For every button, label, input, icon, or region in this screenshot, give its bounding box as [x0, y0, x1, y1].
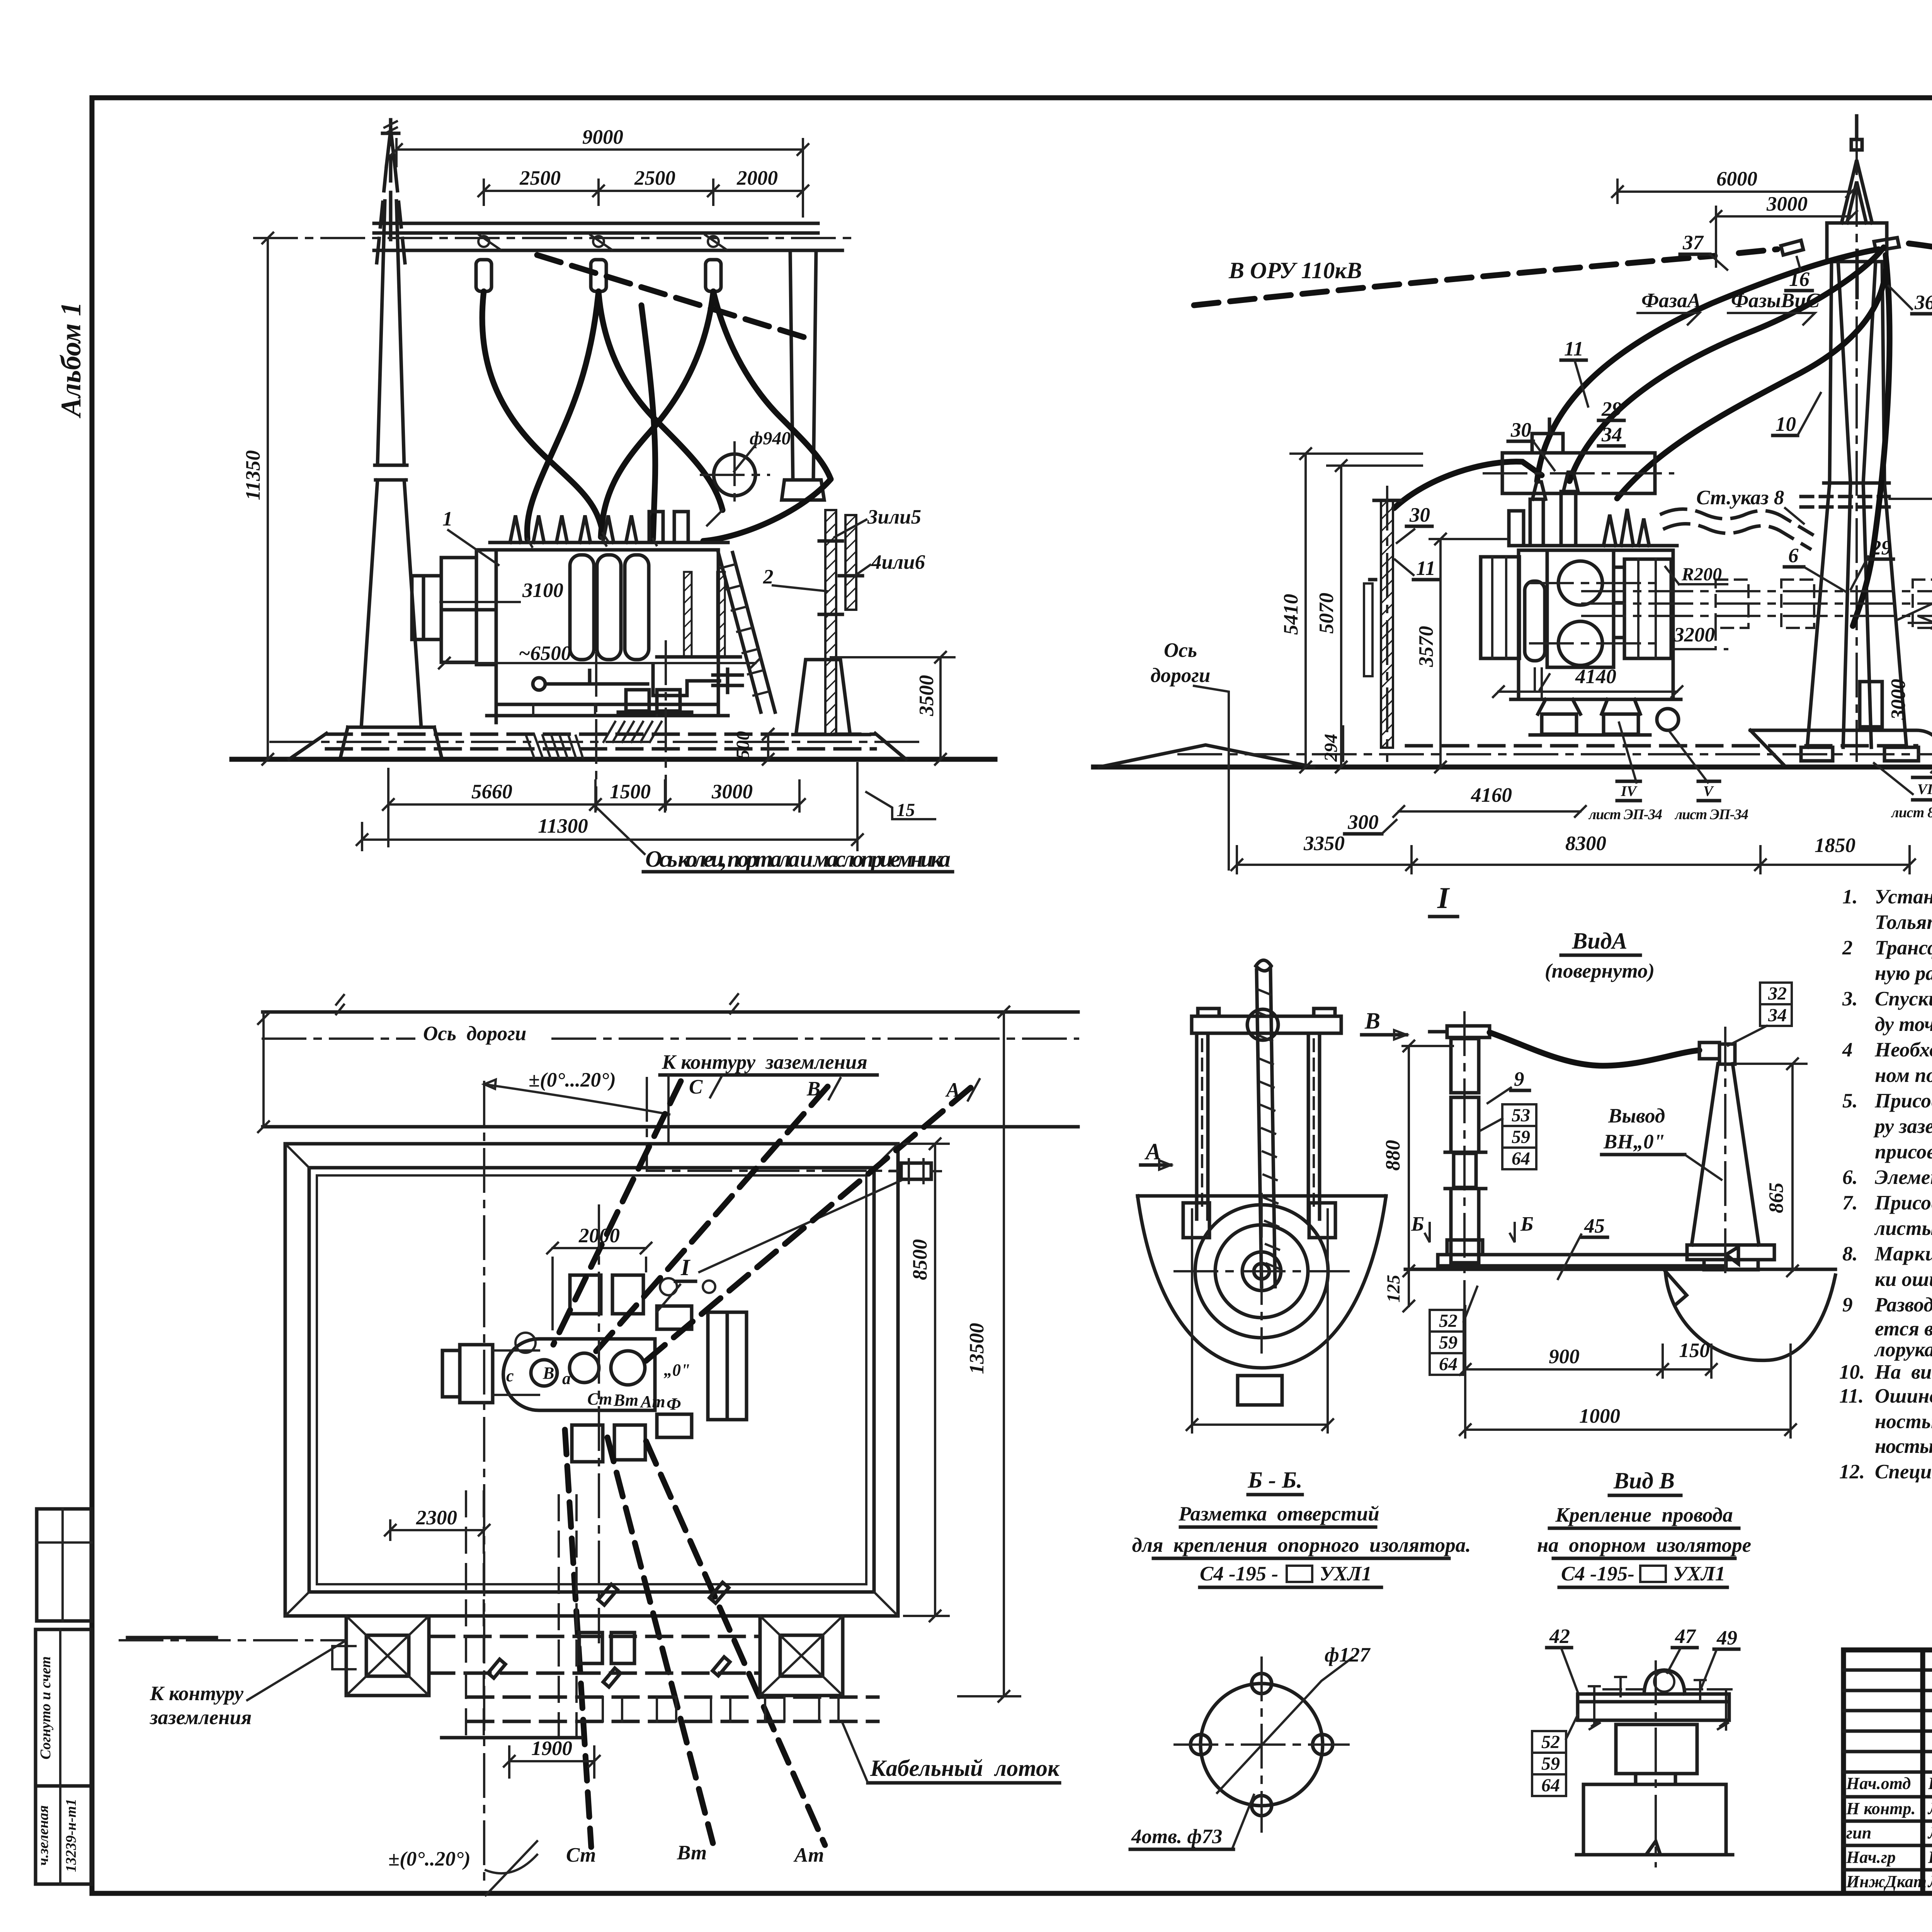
svg-text:Ось колеи, портала и маслоприе: Ось колеи, портала и маслоприемника [645, 846, 951, 872]
svg-text:3000: 3000 [1887, 679, 1910, 720]
svg-text:3500: 3500 [915, 675, 938, 716]
svg-text:С4 -195 -: С4 -195 - [1200, 1563, 1278, 1585]
svg-text:±(0°..20°): ±(0°..20°) [388, 1848, 471, 1870]
svg-text:Вид В: Вид В [1613, 1468, 1675, 1493]
svg-text:1000: 1000 [1579, 1405, 1620, 1427]
svg-text:Ат: Ат [639, 1392, 665, 1411]
svg-text:УХЛ1: УХЛ1 [1673, 1563, 1725, 1585]
svg-text:Присоединение ошиновки НН к: Присоединение ошиновки НН к трансформато… [1874, 1192, 1932, 1214]
svg-text:2500: 2500 [634, 167, 675, 189]
svg-text:Ф: Ф [667, 1395, 681, 1413]
svg-text:лист ЭП-34: лист ЭП-34 [1588, 806, 1662, 823]
svg-text:±(0°...20°): ±(0°...20°) [529, 1069, 616, 1091]
svg-text:64: 64 [1439, 1354, 1458, 1374]
svg-text:3350: 3350 [1303, 832, 1345, 855]
svg-text:8500: 8500 [909, 1239, 931, 1280]
svg-text:30: 30 [1510, 419, 1531, 441]
svg-text:ется в гибких металлорукавах: ется в гибких металлорукавах марки РЗ-Ц-… [1875, 1318, 1932, 1340]
svg-text:30: 30 [1409, 504, 1430, 526]
svg-text:Ошиновка СН выбрана для осн: Ошиновка СН выбрана для основного исполн… [1875, 1385, 1932, 1407]
svg-text:125: 125 [1383, 1275, 1404, 1303]
svg-text:Вт: Вт [677, 1842, 707, 1864]
svg-text:Спецификацию оборудования и: Спецификацию оборудования и материалов с… [1875, 1461, 1932, 1483]
svg-text:В: В [1364, 1008, 1380, 1034]
svg-text:3200: 3200 [1673, 624, 1715, 646]
svg-text:2000: 2000 [736, 167, 778, 189]
svg-text:ч.зеленая: ч.зеленая [35, 1805, 51, 1866]
svg-text:дороги: дороги [1151, 664, 1211, 687]
svg-text:2: 2 [1842, 937, 1853, 959]
svg-text:11300: 11300 [538, 815, 588, 837]
svg-text:1.: 1. [1842, 886, 1858, 908]
svg-text:8300: 8300 [1565, 832, 1606, 855]
svg-text:4отв. ф73: 4отв. ф73 [1131, 1825, 1222, 1848]
svg-text:Ломоносова: Ломоносова [1927, 1799, 1932, 1818]
svg-text:Ат: Ат [793, 1844, 824, 1866]
svg-text:900: 900 [1549, 1345, 1580, 1368]
svg-text:Лурье: Лурье [1927, 1823, 1932, 1842]
svg-text:ИнжДкат: ИнжДкат [1846, 1872, 1927, 1891]
svg-text:45: 45 [1584, 1215, 1605, 1237]
svg-text:Кабельный лоток: Кабельный лоток [870, 1755, 1060, 1781]
svg-text:29: 29 [1601, 398, 1622, 420]
svg-text:ном портале уточняется по че: ном портале уточняется по чертежам зазем… [1875, 1064, 1932, 1087]
svg-text:64: 64 [1512, 1148, 1530, 1169]
svg-text:(повернуто): (повернуто) [1545, 960, 1655, 982]
svg-text:32: 32 [1768, 983, 1787, 1004]
svg-text:59: 59 [1512, 1127, 1530, 1147]
svg-text:53: 53 [1512, 1105, 1530, 1126]
svg-text:для крепления опорного изол: для крепления опорного изолятора. [1132, 1534, 1471, 1556]
svg-text:Альбом 1: Альбом 1 [55, 302, 87, 418]
svg-text:Необходимость и сторона уст: Необходимость и сторона установки молние… [1874, 1039, 1932, 1061]
svg-text:Н контр.: Н контр. [1846, 1799, 1916, 1818]
svg-text:13500: 13500 [966, 1323, 988, 1374]
svg-text:V: V [1703, 783, 1714, 799]
svg-text:листы 9П-44,69 (гибкий токоп: листы 9П-44,69 (гибкий токопровод), 91 (… [1874, 1217, 1932, 1240]
svg-text:ду точкой соединения проводов: ду точкой соединения проводов и контактн… [1875, 1013, 1932, 1036]
svg-text:64: 64 [1541, 1775, 1560, 1796]
svg-text:Тольяттинского электротехниче: Тольяттинского электротехнического завод… [1875, 911, 1932, 934]
svg-text:Б - Б.: Б - Б. [1247, 1467, 1302, 1493]
svg-text:„0": „0" [664, 1361, 690, 1379]
svg-text:К контуру заземления: К контуру заземления [662, 1051, 867, 1073]
svg-text:лорукавов с кабелем к транс: лорукавов с кабелем к трансформатору осу… [1874, 1338, 1932, 1361]
svg-text:13239-н-т1: 13239-н-т1 [63, 1799, 79, 1872]
svg-text:~6500: ~6500 [519, 642, 571, 665]
svg-text:5.: 5. [1842, 1090, 1858, 1112]
svg-text:Ст: Ст [566, 1844, 596, 1866]
svg-text:Крепление провода: Крепление провода [1555, 1504, 1733, 1526]
svg-text:Вт: Вт [613, 1391, 638, 1410]
svg-text:3570: 3570 [1415, 626, 1437, 667]
svg-text:ки ошиновки„0" СН при подклю: ки ошиновки„0" СН при подключении заземл… [1875, 1268, 1932, 1291]
svg-text:9: 9 [1514, 1068, 1524, 1090]
svg-text:заземления: заземления [149, 1706, 252, 1729]
svg-text:присоединения к нему нейтра: присоединения к нему нейтрали и бака тра… [1875, 1141, 1932, 1163]
svg-text:Б: Б [1411, 1213, 1424, 1235]
svg-text:I: I [1437, 881, 1450, 915]
svg-text:6.: 6. [1842, 1166, 1858, 1189]
svg-text:4160: 4160 [1471, 784, 1512, 806]
svg-text:гип: гип [1846, 1823, 1871, 1842]
svg-text:Марки М-10 или М-16 (см. ли: Марки М-10 или М-16 (см. листы ИС.И - 17… [1874, 1243, 1932, 1265]
svg-text:1500: 1500 [610, 781, 651, 803]
svg-text:49: 49 [1716, 1627, 1737, 1649]
svg-text:36: 36 [1914, 291, 1932, 314]
svg-text:150: 150 [1679, 1339, 1710, 1362]
svg-text:4: 4 [1842, 1039, 1853, 1061]
svg-text:5660: 5660 [471, 781, 512, 803]
svg-text:34: 34 [1768, 1005, 1787, 1026]
svg-text:К контуру: К контуру [150, 1682, 243, 1705]
svg-text:ФазыВиС: ФазыВиС [1731, 289, 1820, 312]
svg-text:3или5: 3или5 [867, 506, 921, 528]
svg-text:2500: 2500 [519, 167, 561, 189]
svg-text:Согнуто и счет: Согнуто и счет [37, 1656, 54, 1759]
svg-text:9000: 9000 [582, 126, 623, 148]
svg-text:VI: VI [1917, 781, 1932, 798]
svg-text:52: 52 [1541, 1732, 1560, 1752]
svg-text:ВидА: ВидА [1571, 928, 1627, 954]
svg-text:880: 880 [1382, 1140, 1404, 1171]
svg-text:I: I [680, 1255, 691, 1280]
svg-text:Разметка отверстий: Разметка отверстий [1178, 1503, 1379, 1525]
svg-text:Установка разработана на основ: Установка разработана на основании черте… [1875, 886, 1932, 908]
svg-text:1850: 1850 [1815, 834, 1855, 857]
svg-text:15: 15 [896, 800, 915, 820]
svg-text:Трансформатор установить с укл: Трансформатор установить с уклоном 1,0..… [1875, 937, 1932, 959]
svg-text:на опорном изоляторе: на опорном изоляторе [1537, 1534, 1751, 1556]
svg-text:6: 6 [1788, 544, 1799, 567]
svg-text:12.: 12. [1839, 1461, 1865, 1483]
svg-text:37: 37 [1682, 231, 1704, 254]
svg-text:11: 11 [1416, 557, 1435, 580]
svg-text:11.: 11. [1839, 1385, 1864, 1407]
svg-text:3000: 3000 [1766, 193, 1808, 215]
svg-text:10: 10 [1776, 413, 1796, 435]
svg-text:IV: IV [1621, 783, 1638, 799]
svg-text:16: 16 [1789, 268, 1810, 291]
svg-text:11: 11 [1564, 338, 1583, 360]
svg-text:В: В [543, 1364, 554, 1383]
svg-text:2300: 2300 [416, 1507, 457, 1529]
svg-text:34: 34 [1601, 423, 1622, 446]
svg-text:59: 59 [1439, 1332, 1458, 1353]
svg-text:865: 865 [1765, 1182, 1787, 1213]
svg-text:294: 294 [1321, 734, 1341, 762]
svg-text:Ось дороги: Ось дороги [423, 1022, 526, 1045]
svg-text:47: 47 [1675, 1625, 1697, 1648]
svg-text:ностью обмотки СН Sсн=0.33S: ностью обмотки СН Sсн=0.33Sном. При уста… [1875, 1410, 1932, 1433]
svg-text:42: 42 [1549, 1625, 1570, 1648]
svg-text:300: 300 [1347, 811, 1379, 833]
svg-text:10.: 10. [1839, 1361, 1865, 1383]
svg-text:Разводка силовых и контроль: Разводка силовых и контрольных кабелей п… [1874, 1294, 1932, 1316]
svg-text:ФазаА: ФазаА [1641, 289, 1701, 312]
svg-text:Роменский: Роменский [1928, 1774, 1932, 1793]
svg-text:Ст.указ 8: Ст.указ 8 [1696, 486, 1784, 509]
svg-text:Б: Б [1520, 1213, 1534, 1235]
svg-text:Вывод: Вывод [1608, 1105, 1665, 1127]
svg-text:3.: 3. [1842, 988, 1858, 1010]
svg-text:ную расширителю: ную расширителю [1875, 962, 1932, 985]
svg-text:4или6: 4или6 [871, 551, 925, 573]
svg-text:Ломоносова: Ломоносова [1927, 1872, 1932, 1891]
svg-text:Присоединение трансформаторно: Присоединение трансформаторного портала … [1874, 1090, 1932, 1112]
svg-text:УХЛ1: УХЛ1 [1320, 1563, 1372, 1585]
svg-text:лист ЭП-34: лист ЭП-34 [1674, 806, 1748, 823]
svg-text:52: 52 [1439, 1311, 1458, 1331]
svg-text:С4 -195-: С4 -195- [1561, 1563, 1634, 1585]
svg-text:Спуски к трансформатору выпо: Спуски к трансформатору выполняются на 5… [1875, 988, 1932, 1010]
svg-text:6000: 6000 [1716, 168, 1757, 190]
svg-text:С: С [689, 1076, 703, 1098]
svg-text:Нач.отд: Нач.отд [1846, 1774, 1911, 1793]
svg-text:59: 59 [1541, 1753, 1560, 1774]
svg-text:Элементы, изображенные пункти: Элементы, изображенные пунктиром, не вхо… [1875, 1166, 1932, 1189]
svg-text:1: 1 [442, 508, 453, 530]
svg-text:500: 500 [733, 731, 753, 759]
svg-text:29: 29 [1871, 537, 1891, 559]
svg-text:R200: R200 [1681, 564, 1722, 585]
svg-text:Ось: Ось [1164, 639, 1197, 662]
svg-text:Нач.гр: Нач.гр [1846, 1848, 1896, 1867]
svg-text:1900: 1900 [531, 1737, 572, 1760]
svg-text:9: 9 [1842, 1294, 1853, 1316]
svg-text:В ОРУ 110кВ: В ОРУ 110кВ [1228, 258, 1362, 283]
svg-text:ру заземления осуществить на: ру заземления осуществить на расстоянии … [1873, 1115, 1932, 1138]
svg-text:лист 8П-34: лист 8П-34 [1891, 804, 1932, 821]
svg-text:ф127: ф127 [1325, 1644, 1371, 1666]
svg-text:7.: 7. [1842, 1192, 1858, 1214]
svg-text:На виде спереди шинный мо: На виде спереди шинный мост НН условно н… [1874, 1361, 1932, 1383]
svg-text:с: с [506, 1366, 514, 1385]
svg-text:4140: 4140 [1575, 665, 1616, 688]
svg-text:5070: 5070 [1315, 593, 1338, 634]
svg-text:8.: 8. [1842, 1243, 1858, 1265]
svg-text:ностью Sон=0.5Sном или Sсн=0: ностью Sон=0.5Sном или Sсн=0.675Sном сеч… [1875, 1435, 1932, 1458]
svg-text:11350: 11350 [242, 450, 264, 500]
svg-text:ВН„0": ВН„0" [1603, 1131, 1665, 1153]
svg-text:Карпов: Карпов [1928, 1848, 1932, 1867]
svg-text:а: а [562, 1369, 571, 1388]
svg-text:3100: 3100 [522, 579, 563, 602]
svg-text:5410: 5410 [1280, 594, 1302, 635]
svg-text:3000: 3000 [711, 781, 753, 803]
